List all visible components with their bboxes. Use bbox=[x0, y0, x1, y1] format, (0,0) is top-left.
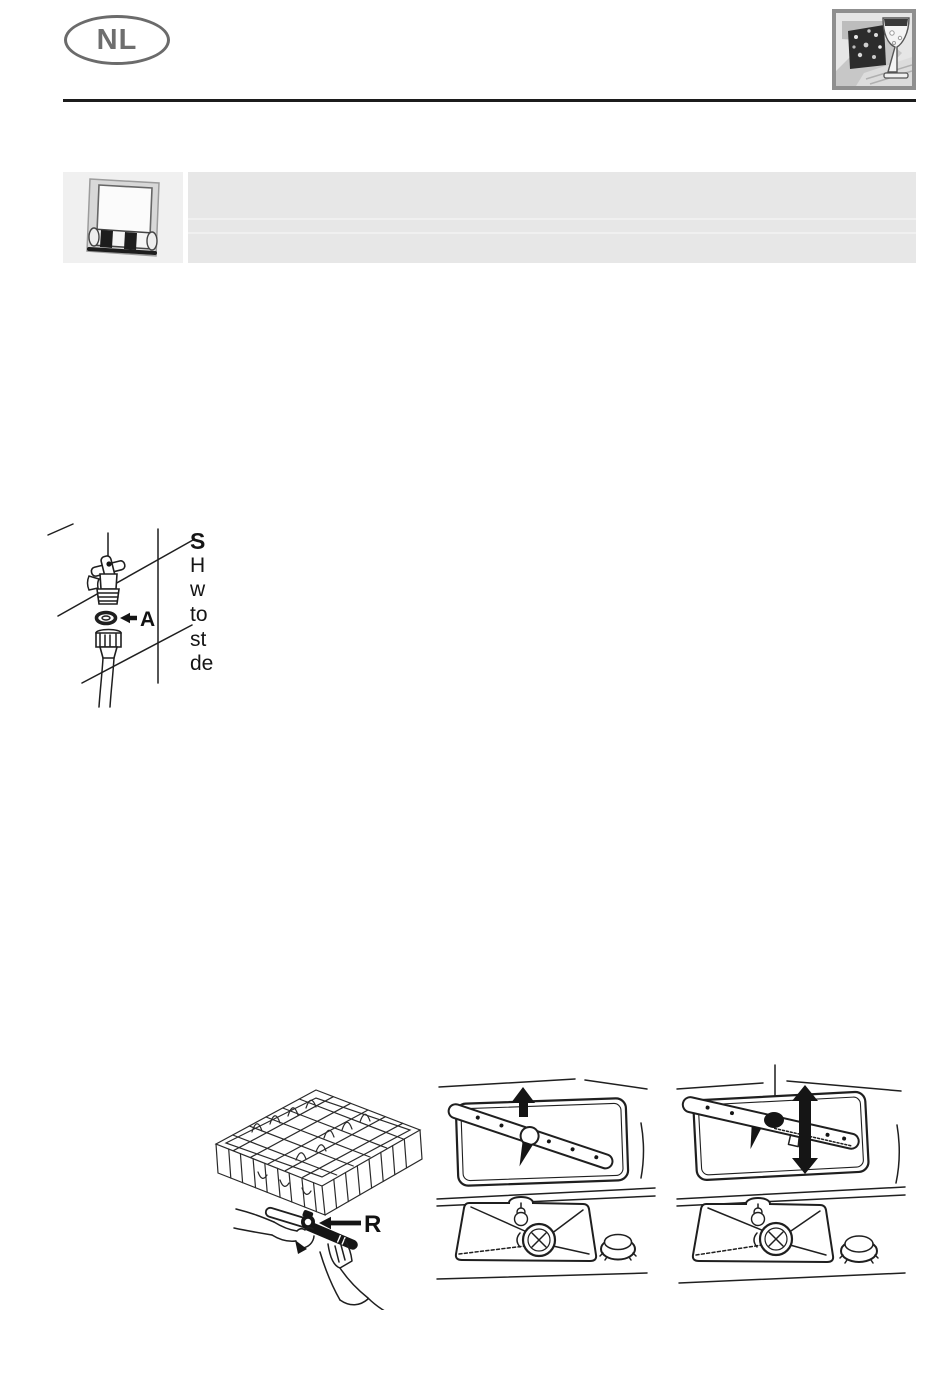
water-tap-hose-filter-diagram: A bbox=[40, 515, 195, 710]
note-banner-text-area bbox=[188, 172, 916, 263]
language-badge-label: NL bbox=[97, 24, 138, 57]
wire-basket bbox=[216, 1090, 422, 1215]
filter-washer bbox=[97, 613, 116, 624]
rotate-arrow-icon bbox=[302, 1236, 314, 1248]
text-line: H bbox=[190, 554, 218, 579]
spray-arm-lift-diagram bbox=[435, 1073, 660, 1305]
text-line: de bbox=[190, 652, 218, 677]
text-line: st bbox=[190, 628, 218, 653]
salt-cap bbox=[600, 1235, 636, 1261]
callout-label-a: A bbox=[140, 608, 155, 631]
dishwasher-basket-and-glass-icon bbox=[832, 9, 916, 90]
banner-highlight-line bbox=[188, 218, 916, 220]
banner-highlight-line bbox=[188, 232, 916, 234]
spray-arm-fit-diagram bbox=[675, 1063, 910, 1305]
salt-cap bbox=[840, 1236, 878, 1263]
left-arrow-icon bbox=[319, 1217, 361, 1229]
arm-hub-ball bbox=[764, 1112, 784, 1128]
text-line: S bbox=[190, 529, 218, 554]
lower-basket-and-spray-arm-diagram: R bbox=[200, 1080, 425, 1310]
dishwasher-basket-and-glass-art bbox=[836, 13, 912, 86]
detergent-dispenser-icon bbox=[63, 172, 183, 263]
clipped-paragraph: S H w to st de bbox=[190, 529, 218, 677]
text-line: to bbox=[190, 603, 218, 628]
header-divider bbox=[63, 99, 916, 102]
sump-and-filter bbox=[693, 1198, 833, 1262]
text-line: w bbox=[190, 578, 218, 603]
manual-page: NL bbox=[0, 0, 950, 1377]
left-arrow-icon bbox=[120, 613, 137, 623]
language-badge: NL bbox=[64, 15, 170, 65]
sump-and-filter bbox=[456, 1197, 596, 1261]
callout-label-r: R bbox=[364, 1211, 381, 1238]
detergent-dispenser-art bbox=[63, 172, 183, 263]
